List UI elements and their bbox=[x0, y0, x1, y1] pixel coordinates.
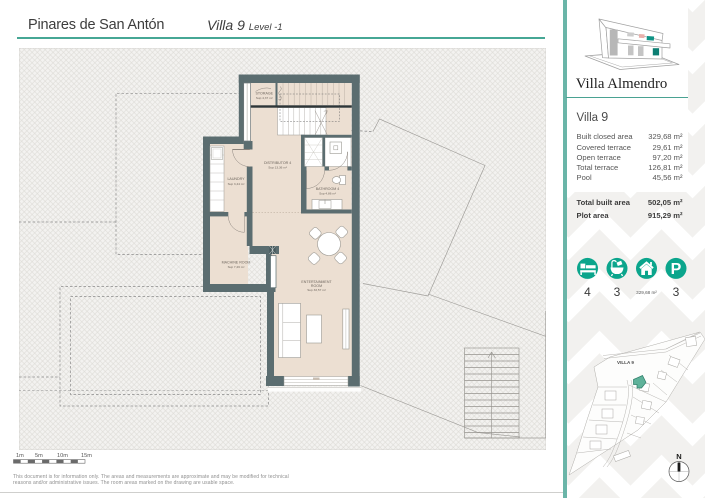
svg-text:15m: 15m bbox=[81, 453, 92, 459]
svg-text:329,68 m²: 329,68 m² bbox=[636, 290, 657, 295]
svg-text:Sup 3,44 m²: Sup 3,44 m² bbox=[228, 182, 245, 186]
svg-text:1m: 1m bbox=[16, 453, 24, 459]
svg-text:4: 4 bbox=[584, 285, 591, 299]
svg-text:Sup 7,26 m²: Sup 7,26 m² bbox=[228, 265, 245, 269]
svg-text:P: P bbox=[671, 261, 682, 278]
svg-text:DISTRIBUTOR 4: DISTRIBUTOR 4 bbox=[264, 161, 291, 165]
svg-text:N: N bbox=[676, 452, 681, 461]
svg-text:LAUNDRY: LAUNDRY bbox=[227, 177, 245, 181]
svg-text:STORAGE: STORAGE bbox=[256, 92, 274, 96]
svg-text:5m: 5m bbox=[35, 453, 43, 459]
svg-text:MACHINE ROOM: MACHINE ROOM bbox=[222, 260, 251, 264]
svg-text:3: 3 bbox=[673, 285, 680, 299]
svg-text:Sup 33,57 m²: Sup 33,57 m² bbox=[307, 288, 326, 292]
svg-text:Sup 4,86 m²: Sup 4,86 m² bbox=[319, 192, 336, 196]
svg-text:Sup 4,37 m²: Sup 4,37 m² bbox=[256, 96, 273, 100]
svg-text:10m: 10m bbox=[57, 453, 68, 459]
svg-text:3: 3 bbox=[614, 285, 621, 299]
svg-text:BATHROOM 4: BATHROOM 4 bbox=[316, 187, 340, 191]
svg-text:Sup 13,36 m²: Sup 13,36 m² bbox=[268, 166, 287, 170]
svg-text:VILLA 9: VILLA 9 bbox=[617, 360, 634, 365]
